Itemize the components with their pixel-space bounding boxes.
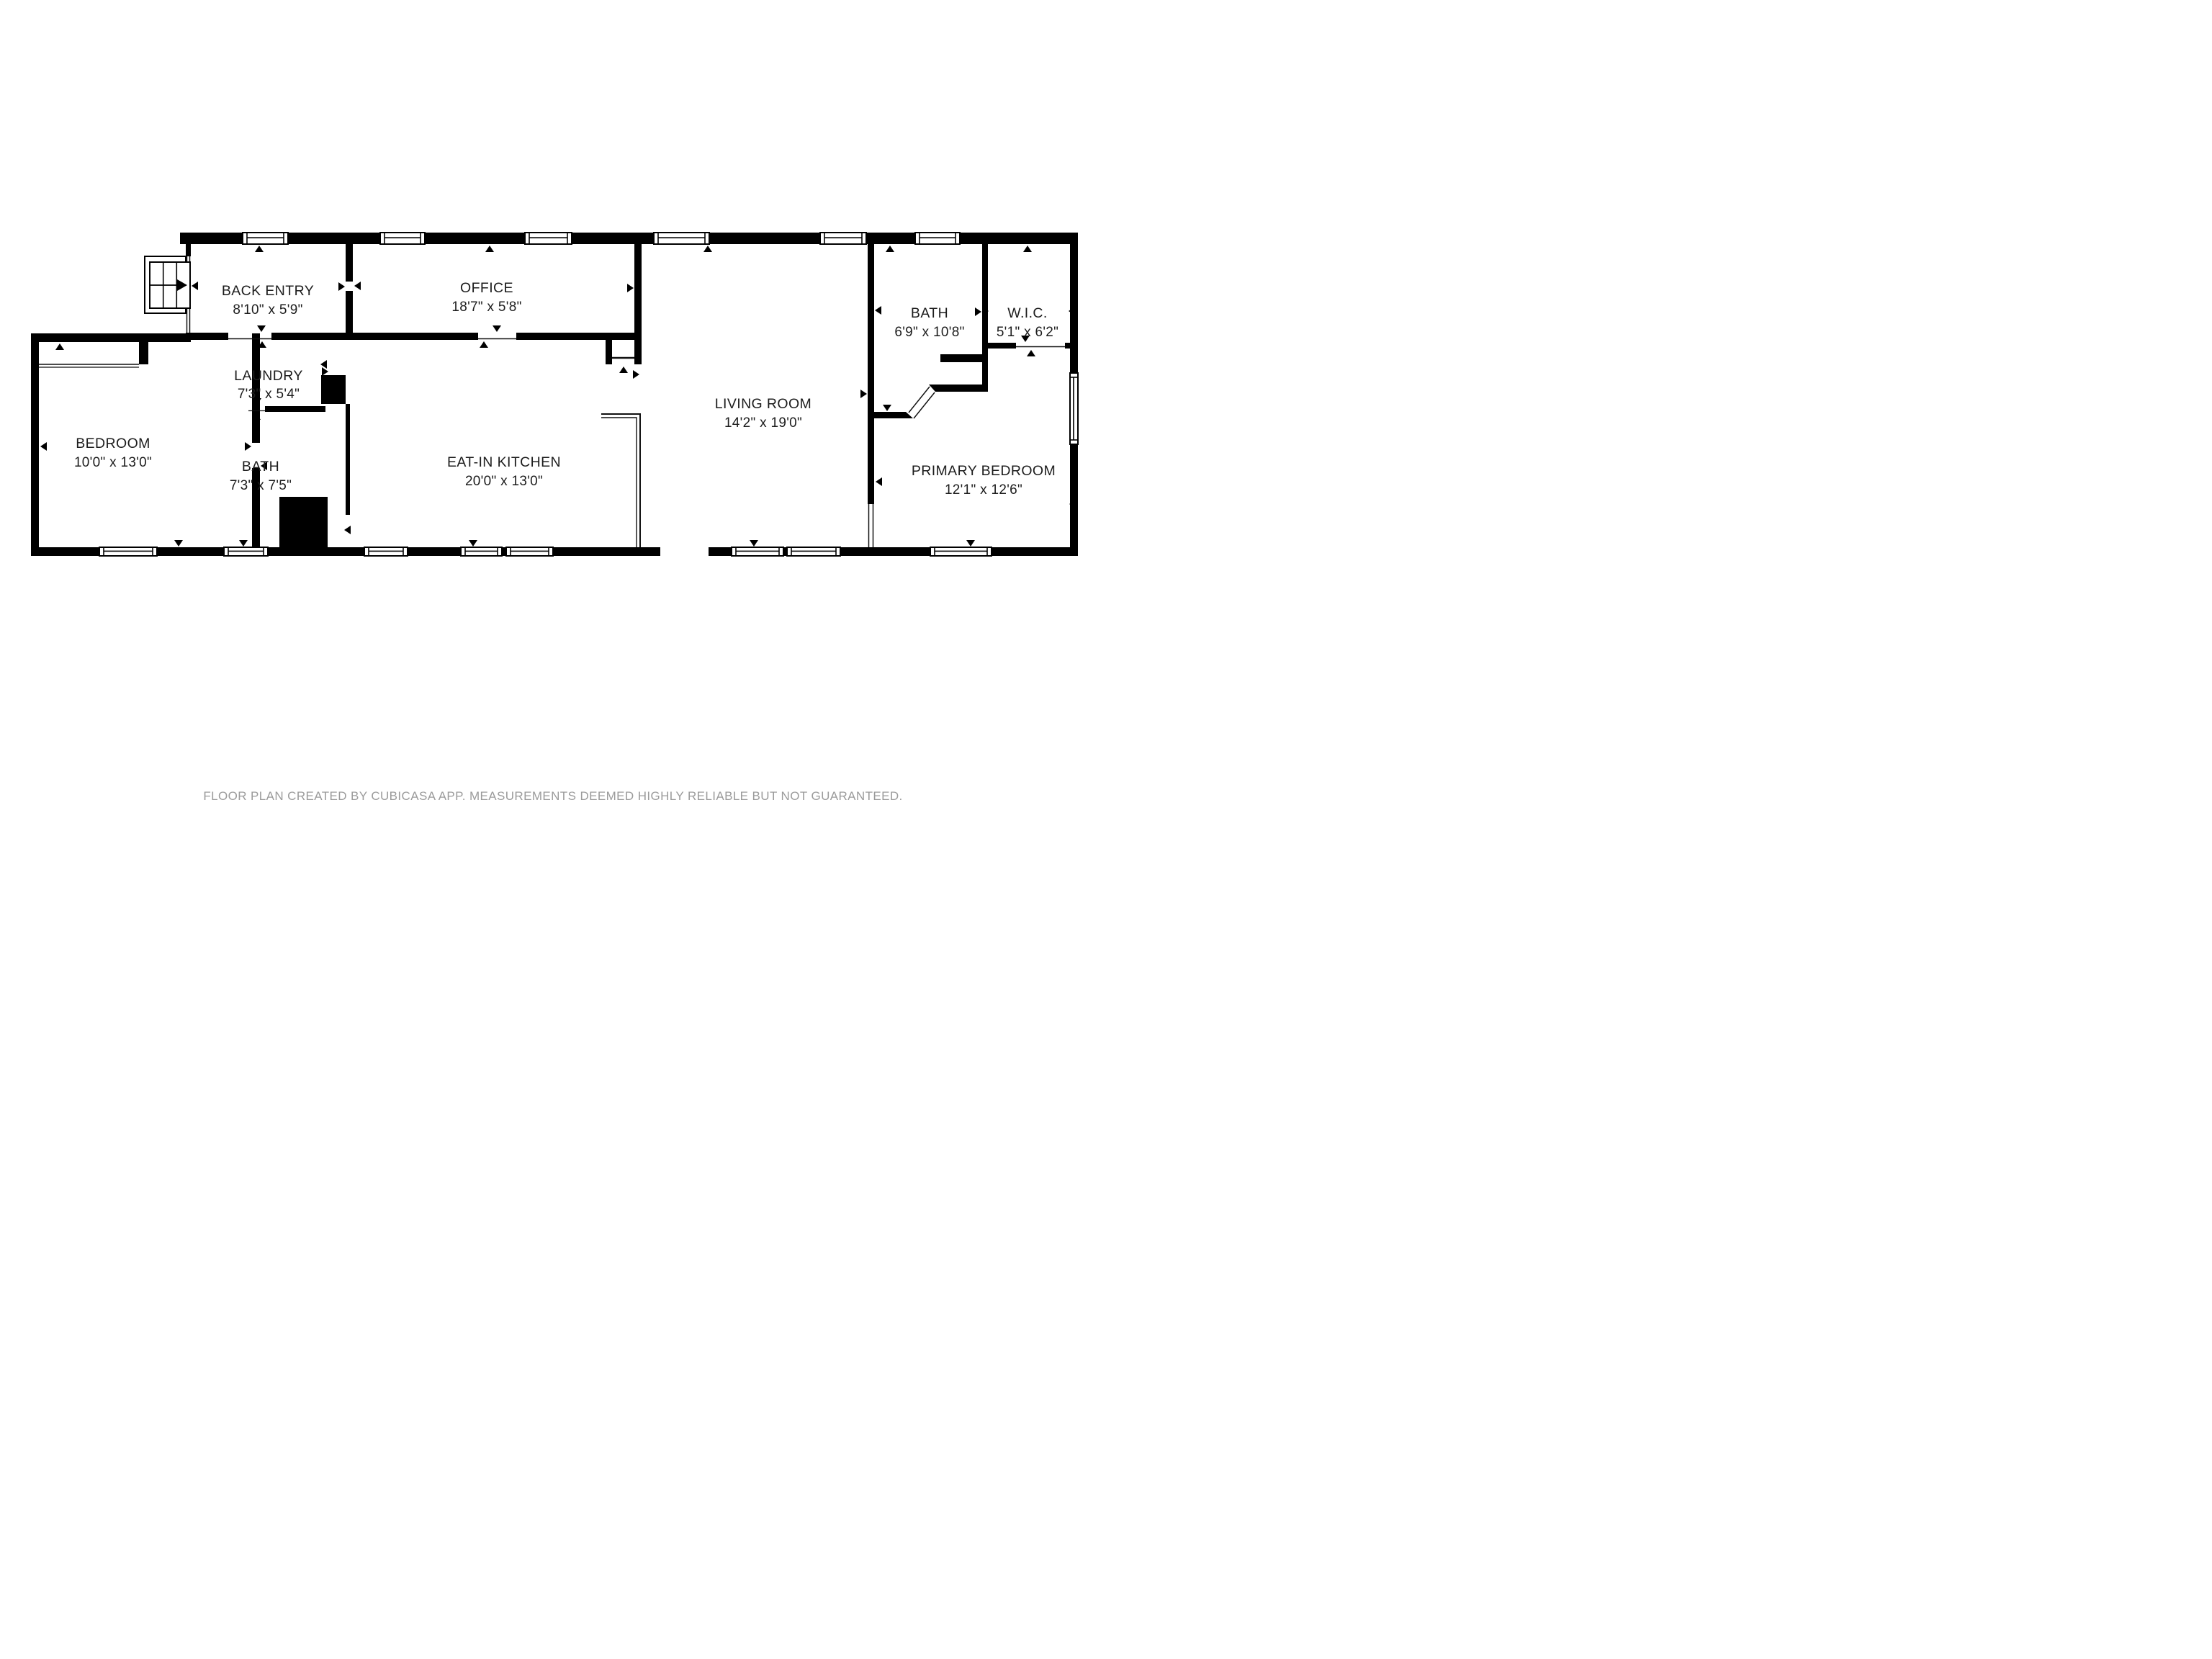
floor-plan-page: BACK ENTRY 8'10" x 5'9" OFFICE 18'7" x 5…: [0, 0, 1106, 829]
door-arrow-icon: [338, 282, 345, 291]
wall: [874, 412, 913, 418]
kitchen-counter: [601, 418, 637, 547]
room-label-bedroom: BEDROOM 10'0" x 13'0": [74, 436, 152, 470]
wall: [279, 497, 328, 556]
room-name: EAT-IN KITCHEN: [447, 454, 561, 470]
window: [732, 547, 783, 556]
window: [915, 233, 960, 244]
room-label-living-room: LIVING ROOM 14'2" x 19'0": [715, 396, 811, 431]
window: [787, 547, 840, 556]
door-arrow-icon: [245, 442, 251, 451]
door-arrow-icon: [344, 526, 351, 534]
door-arrow-icon: [750, 540, 758, 547]
room-dims: 7'3" x 5'4": [238, 387, 300, 402]
window: [820, 233, 866, 244]
window: [243, 233, 288, 244]
room-dims: 5'1" x 6'2": [997, 325, 1058, 340]
open-door-leaf: [914, 392, 935, 418]
wall: [1065, 343, 1070, 349]
wall: [516, 333, 642, 340]
door-arrow-icon: [633, 370, 639, 379]
room-name: BACK ENTRY: [222, 283, 314, 299]
room-dims: 7'3" x 7'5": [230, 478, 292, 493]
door-arrow-icon: [469, 540, 477, 547]
window: [380, 233, 425, 244]
door-arrow-icon: [883, 405, 891, 411]
window: [1070, 373, 1078, 444]
door-arrow-icon: [966, 540, 975, 547]
wall: [139, 333, 148, 364]
door-arrow-icon: [975, 307, 981, 316]
door-arrow-icon: [480, 341, 488, 348]
wall: [271, 333, 478, 340]
door-arrow-icon: [174, 540, 183, 547]
door-arrow-icon: [40, 442, 47, 451]
room-name: W.I.C.: [1007, 305, 1047, 321]
room-name: BATH: [911, 305, 948, 321]
door-arrow-icon: [192, 282, 198, 290]
window: [525, 233, 572, 244]
open-door-leaf: [909, 387, 930, 413]
thin-lines: [39, 256, 1065, 547]
room-name: PRIMARY BEDROOM: [912, 463, 1056, 479]
wall: [265, 406, 325, 412]
door-arrow-icon: [619, 367, 628, 373]
room-dims: 8'10" x 5'9": [233, 302, 302, 318]
wall: [346, 291, 353, 333]
door-arrow-icon: [320, 360, 327, 369]
wall: [982, 244, 988, 390]
room-name: OFFICE: [460, 280, 513, 296]
room-dims: 20'0" x 13'0": [465, 474, 543, 489]
room-dims: 10'0" x 13'0": [74, 455, 152, 470]
door-arrow-icon: [354, 282, 361, 290]
wall: [634, 244, 642, 364]
room-dims: 18'7" x 5'8": [451, 300, 521, 315]
window: [99, 547, 157, 556]
door-arrow-icon: [322, 367, 328, 376]
window: [654, 233, 709, 244]
door-arrow-icon: [875, 306, 881, 315]
window: [224, 547, 268, 556]
room-label-primary-bedroom: PRIMARY BEDROOM 12'1" x 12'6": [912, 463, 1056, 498]
room-dims: 14'2" x 19'0": [724, 415, 802, 431]
wall: [346, 404, 350, 515]
door-arrow-icon: [627, 284, 634, 292]
room-name: BEDROOM: [76, 436, 150, 451]
window: [506, 547, 553, 556]
door-arrow-icon: [703, 246, 712, 252]
wall: [988, 343, 1016, 349]
stairs-icon: [145, 256, 190, 313]
room-dims: 6'9" x 10'8": [894, 325, 964, 340]
window: [364, 547, 408, 556]
wall: [186, 333, 228, 340]
room-label-office: OFFICE 18'7" x 5'8": [451, 280, 521, 315]
window: [930, 547, 992, 556]
door-arrow-icon: [1027, 350, 1035, 356]
door-arrow-icon: [886, 246, 894, 252]
door-arrow-icon: [876, 477, 882, 486]
room-name: LAUNDRY: [234, 368, 303, 384]
door-arrow-icon: [55, 343, 64, 350]
room-name: LIVING ROOM: [715, 396, 811, 412]
room-label-wic: W.I.C. 5'1" x 6'2": [997, 305, 1058, 340]
kitchen-counter: [601, 414, 640, 547]
room-dims: 12'1" x 12'6": [945, 482, 1022, 498]
wall: [31, 342, 39, 556]
wall: [31, 333, 191, 342]
wall: [940, 354, 988, 362]
room-label-bath-lower: BATH 7'3" x 7'5": [230, 459, 292, 493]
wall: [346, 244, 353, 282]
floor-plan-canvas: BACK ENTRY 8'10" x 5'9" OFFICE 18'7" x 5…: [0, 0, 1106, 829]
door-arrow-icon: [255, 246, 264, 252]
door-direction-arrows: [40, 246, 1076, 547]
wall: [868, 244, 874, 504]
window: [461, 547, 502, 556]
wall: [606, 340, 612, 364]
wall: [186, 244, 191, 256]
door-arrow-icon: [257, 325, 266, 332]
room-label-laundry: LAUNDRY 7'3" x 5'4": [234, 368, 303, 402]
door-arrow-icon: [485, 246, 494, 252]
wall: [929, 385, 988, 392]
wall: [321, 375, 346, 404]
door-arrow-icon: [1023, 246, 1032, 252]
disclaimer-text: FLOOR PLAN CREATED BY CUBICASA APP. MEAS…: [0, 789, 1106, 804]
wall: [1070, 444, 1078, 556]
room-name: BATH: [242, 459, 279, 475]
room-label-eat-in-kitchen: EAT-IN KITCHEN 20'0" x 13'0": [447, 454, 561, 489]
door-arrow-icon: [239, 540, 248, 547]
door-arrow-icon: [493, 325, 501, 332]
room-label-back-entry: BACK ENTRY 8'10" x 5'9": [222, 283, 314, 318]
door-arrow-icon: [860, 390, 867, 398]
room-label-bath-upper: BATH 6'9" x 10'8": [894, 305, 964, 340]
